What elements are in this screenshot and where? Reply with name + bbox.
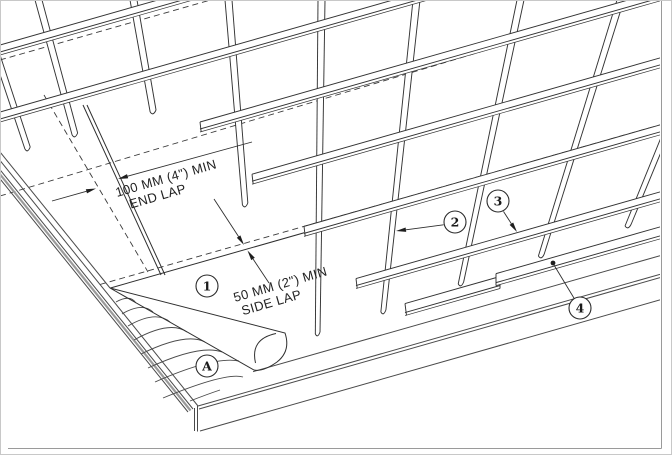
counter-batten — [35, 0, 72, 135]
wood-grain-line — [122, 307, 153, 314]
dimension-arrow-icon — [248, 251, 255, 261]
dimension-arrow-icon — [237, 235, 244, 245]
side-lap-label: 50 MM (2") MIN SIDE LAP — [232, 262, 337, 319]
underlayment-roll-edge — [255, 334, 276, 364]
tile-batten — [252, 58, 660, 174]
end-lap-dimension: 100 MM (4") MIN END LAP — [52, 142, 252, 214]
callout-3-tile-batten: 3 — [487, 190, 517, 232]
svg-text:3: 3 — [494, 194, 503, 209]
leader-dot-icon — [551, 261, 556, 266]
dimension-arrow-icon — [86, 189, 96, 194]
construction-detail-svg: 100 MM (4") MIN END LAP 50 MM (2") MIN S… — [0, 0, 672, 455]
svg-text:4: 4 — [576, 301, 585, 316]
callout-arrow-icon — [510, 223, 517, 233]
callout-2-counter-batten: 2 — [396, 211, 466, 233]
callout-A-roof-deck: A — [196, 355, 218, 377]
upper-course-hidden-line — [0, 0, 211, 60]
detail-drawing-canvas: 100 MM (4") MIN END LAP 50 MM (2") MIN S… — [0, 0, 672, 455]
callout-1-underlayment: 1 — [196, 275, 218, 297]
wood-grain-line — [190, 390, 220, 401]
svg-text:2: 2 — [451, 215, 460, 230]
svg-text:A: A — [201, 359, 212, 374]
svg-text:1: 1 — [203, 279, 212, 294]
counter-batten — [625, 0, 672, 226]
callout-arrow-icon — [396, 228, 406, 232]
roof-batten-grid — [0, 0, 672, 432]
callout-4-eave-batten: 4 — [551, 261, 591, 319]
end-lap-label: 100 MM (4") MIN END LAP — [114, 155, 227, 214]
wood-grain-line — [134, 328, 187, 341]
